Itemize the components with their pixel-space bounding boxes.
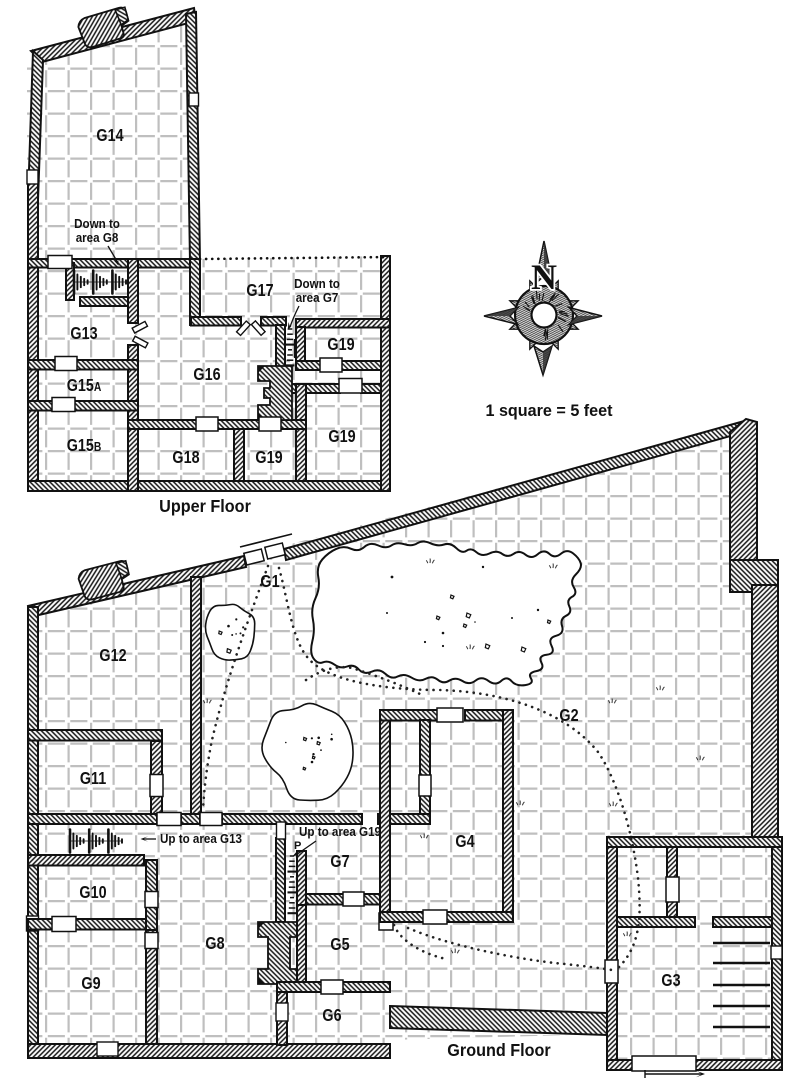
svg-text:Up to area G13: Up to area G13 [160,832,242,846]
svg-text:G4: G4 [455,833,474,852]
svg-text:N: N [531,257,557,297]
svg-text:area G7: area G7 [296,291,339,305]
svg-text:G18: G18 [172,449,199,468]
svg-text:Up to area G19: Up to area G19 [299,825,381,839]
svg-text:P: P [294,840,301,852]
svg-text:G10: G10 [79,884,106,903]
svg-text:G19: G19 [255,449,282,468]
svg-text:G13: G13 [70,325,97,344]
svg-text:G12: G12 [99,647,126,666]
svg-text:G17: G17 [246,282,273,301]
svg-text:G16: G16 [193,366,220,385]
svg-text:G14: G14 [96,127,123,146]
svg-text:1 square = 5 feet: 1 square = 5 feet [485,401,612,420]
svg-text:G8: G8 [205,935,224,954]
svg-text:G5: G5 [330,936,349,955]
svg-text:G2: G2 [559,707,578,726]
svg-text:G6: G6 [322,1007,341,1026]
svg-text:Upper Floor: Upper Floor [159,496,251,516]
svg-text:Down to: Down to [294,277,340,291]
svg-text:G3: G3 [661,972,680,991]
svg-text:Ground Floor: Ground Floor [447,1040,551,1060]
svg-text:G9: G9 [81,975,100,994]
svg-text:Down to: Down to [74,217,120,231]
svg-text:G1: G1 [260,573,279,592]
svg-text:G19: G19 [328,428,355,447]
svg-text:G7: G7 [330,853,349,872]
svg-text:area G8: area G8 [76,231,119,245]
svg-text:G11: G11 [80,770,106,789]
svg-text:G19: G19 [327,336,354,355]
